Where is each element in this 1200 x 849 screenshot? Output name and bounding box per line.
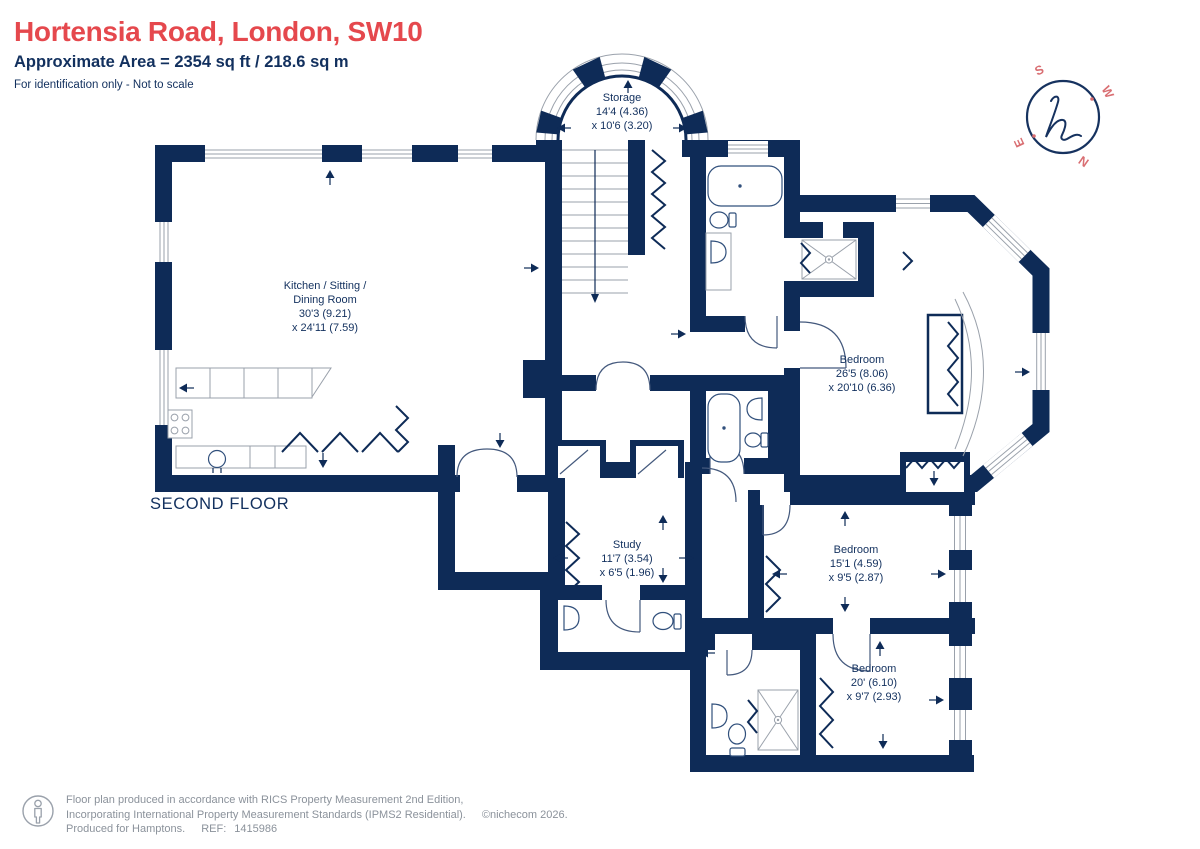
dimension-arrows: [179, 80, 1030, 749]
footer: Floor plan produced in accordance with R…: [20, 793, 568, 837]
sink-icon: [564, 606, 579, 630]
sink-icon: [712, 704, 727, 728]
compass-s: S: [1033, 62, 1046, 78]
kitchen-counter: [176, 446, 306, 468]
svg-text:30'3 (9.21): 30'3 (9.21): [299, 308, 351, 320]
kitchen-label: Kitchen / Sitting /: [284, 280, 367, 292]
bedroom-2-label: Bedroom: [834, 544, 879, 556]
footer-ref-value: 1415986: [234, 823, 277, 835]
bedroom-1-label: Bedroom: [840, 354, 885, 366]
floorplan-page: Hortensia Road, London, SW10 Approximate…: [0, 0, 1200, 849]
staircase: [562, 150, 628, 303]
person-icon: [20, 793, 56, 829]
svg-text:14'4 (4.36): 14'4 (4.36): [596, 106, 648, 118]
svg-text:x 20'10 (6.36): x 20'10 (6.36): [829, 382, 896, 394]
sink-icon: [747, 398, 762, 420]
footer-line-3: Produced for Hamptons.REF:1415986: [66, 822, 568, 837]
floorplan-drawing: Storage 14'4 (4.36) x 10'6 (3.20) Kitche…: [0, 0, 1200, 849]
footer-ref-label: REF:: [201, 823, 226, 835]
stove-icon: [168, 410, 192, 438]
compass: S W E N: [1011, 62, 1116, 169]
bath-icon: [708, 166, 782, 206]
wardrobe: [928, 315, 962, 413]
bedroom-3-label: Bedroom: [852, 663, 897, 675]
svg-text:x 6'5 (1.96): x 6'5 (1.96): [600, 567, 655, 579]
study-label: Study: [613, 539, 642, 551]
svg-text:x 10'6 (3.20): x 10'6 (3.20): [592, 120, 653, 132]
svg-text:x 9'5 (2.87): x 9'5 (2.87): [829, 572, 884, 584]
toilet-icon: [745, 433, 761, 447]
footer-produced-for: Produced for Hamptons.: [66, 823, 185, 835]
compass-e: E: [1011, 136, 1027, 149]
hamptons-monogram-icon: [1046, 97, 1081, 140]
svg-text:20' (6.10): 20' (6.10): [851, 677, 897, 689]
svg-text:11'7 (3.54): 11'7 (3.54): [601, 553, 652, 565]
toilet-icon: [729, 724, 746, 744]
room-labels: Storage 14'4 (4.36) x 10'6 (3.20) Kitche…: [284, 92, 902, 703]
svg-text:x 24'11 (7.59): x 24'11 (7.59): [292, 322, 358, 334]
footer-ipms-text: Incorporating International Property Mea…: [66, 809, 466, 821]
footer-text: Floor plan produced in accordance with R…: [66, 793, 568, 837]
svg-text:15'1 (4.59): 15'1 (4.59): [830, 558, 882, 570]
svg-text:x 9'7 (2.93): x 9'7 (2.93): [847, 691, 902, 703]
footer-line-2: Incorporating International Property Mea…: [66, 808, 568, 823]
toilet-icon: [710, 212, 728, 228]
svg-text:26'5 (8.06): 26'5 (8.06): [836, 368, 888, 380]
toilet-icon: [653, 613, 673, 630]
compass-n: N: [1076, 153, 1091, 170]
svg-text:Dining Room: Dining Room: [293, 294, 357, 306]
storage-label: Storage: [603, 92, 642, 104]
footer-line-1: Floor plan produced in accordance with R…: [66, 793, 568, 808]
footer-copyright: ©nichecom 2026.: [482, 809, 568, 821]
compass-w: W: [1099, 84, 1117, 101]
